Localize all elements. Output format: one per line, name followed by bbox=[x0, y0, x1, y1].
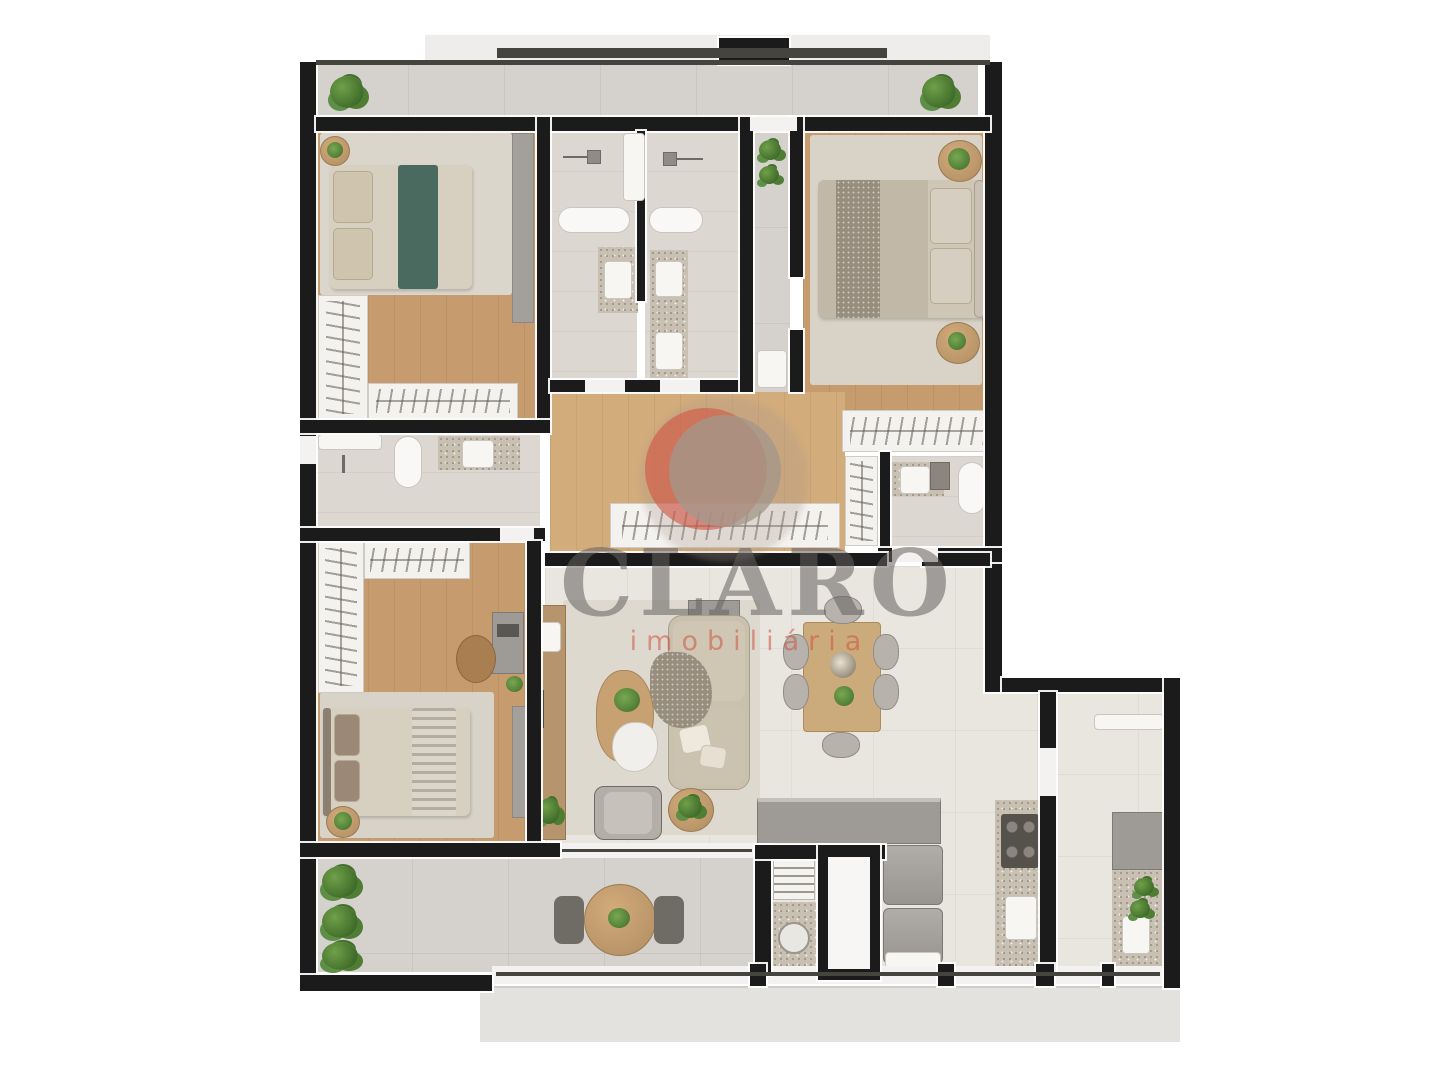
balcony-hedge-2 bbox=[322, 906, 358, 938]
bathroom1-bench bbox=[558, 207, 630, 233]
wall-baths-bottom bbox=[550, 380, 740, 392]
wall-bedroom1-bottom bbox=[300, 420, 550, 433]
bedroom1-nightstand-plant bbox=[327, 142, 343, 158]
laundry-tub bbox=[778, 922, 810, 954]
bedroom1-pillow-1 bbox=[333, 171, 373, 223]
master-pillow-1 bbox=[930, 188, 972, 244]
dining-chair-right-2 bbox=[873, 674, 899, 710]
bathroom3-door bbox=[500, 528, 534, 541]
wall-kitchen-right bbox=[1040, 692, 1056, 974]
wall-foyer-right-b bbox=[790, 330, 803, 392]
bedroom1-wardrobe-panel bbox=[512, 133, 534, 323]
service-shelf bbox=[1094, 714, 1164, 730]
master-nightstand-plant-bottom bbox=[948, 332, 966, 350]
sofa-pillow-2 bbox=[698, 744, 727, 770]
bedroom2-closet-top bbox=[364, 541, 470, 579]
bathroom3-window bbox=[300, 436, 316, 464]
bedroom1-pillow-2 bbox=[333, 228, 373, 280]
terrace-top-rail bbox=[316, 60, 990, 65]
watermark-disc bbox=[669, 415, 781, 527]
terrace-plant-right bbox=[922, 76, 956, 108]
foyer-console bbox=[757, 350, 787, 388]
bedroom2-closet-left bbox=[318, 541, 364, 693]
balcony-chair-right bbox=[654, 896, 684, 944]
kitchen-island-counter bbox=[757, 798, 941, 844]
floorplan-render: CLARO imobiliária bbox=[0, 0, 1440, 1080]
watermark-tagline: imobiliária bbox=[560, 622, 940, 662]
balcony-table-plant bbox=[608, 908, 630, 928]
kitchen-service-door bbox=[1040, 748, 1056, 796]
bathroom3-shower-handle bbox=[342, 455, 345, 473]
wing-top-wall bbox=[1002, 678, 1180, 692]
balcony-door-track bbox=[562, 849, 752, 852]
bathroom3-cabinet bbox=[318, 434, 382, 450]
void-mask bbox=[1002, 556, 1180, 680]
balcony-hedge-3 bbox=[322, 942, 358, 970]
bedroom2-wardrobe-panel bbox=[512, 706, 527, 818]
armchair-seat bbox=[604, 792, 652, 834]
master-pillow-2 bbox=[930, 248, 972, 304]
bathroom2-shower-head bbox=[663, 152, 677, 166]
bathroom2-bench bbox=[649, 207, 703, 233]
bathroom2-sink-1 bbox=[655, 261, 683, 297]
wall-foyer-right-a bbox=[790, 117, 803, 277]
master-bath-toilet bbox=[958, 462, 986, 514]
balcony-hedge-1 bbox=[322, 866, 358, 898]
bedroom2-headboard bbox=[323, 708, 331, 816]
bedroom2-plant bbox=[506, 676, 523, 692]
bedroom1-closet-bottom bbox=[368, 383, 518, 419]
wall-bedroom2-right bbox=[527, 541, 541, 843]
bottom-ledge bbox=[480, 986, 1180, 1042]
bedroom1-teal-runner bbox=[398, 165, 438, 289]
master-bath-shelf bbox=[930, 462, 950, 490]
service-sink bbox=[1122, 916, 1150, 954]
master-bath-sink bbox=[900, 466, 930, 494]
kitchen-sink bbox=[1005, 896, 1037, 940]
bottom-window-glass bbox=[496, 972, 1160, 976]
bathroom1-sink bbox=[604, 261, 632, 299]
bathroom1-shower-head bbox=[587, 150, 601, 164]
laundry-shaft-void bbox=[828, 857, 870, 969]
dining-chair-bottom bbox=[822, 732, 860, 758]
cooktop bbox=[1001, 814, 1039, 868]
bathroom2-sink-2 bbox=[655, 332, 683, 370]
top-window-bar bbox=[497, 48, 887, 58]
master-bed-runner bbox=[836, 180, 880, 318]
window-wall-row1 bbox=[316, 117, 990, 131]
master-closet-top bbox=[842, 410, 992, 452]
bedroom2-striped-blanket bbox=[412, 708, 456, 816]
bathroom2-shower-arm bbox=[677, 158, 703, 160]
bath-divider-cabinet bbox=[623, 133, 645, 201]
balcony-floor bbox=[316, 857, 755, 972]
bottom-left-wall bbox=[300, 975, 492, 991]
bedroom2-desk-chair bbox=[456, 635, 496, 683]
wall-bedroom2-bottom bbox=[300, 843, 560, 857]
bathroom3-sink bbox=[462, 440, 494, 468]
wing-right-wall bbox=[1164, 678, 1180, 988]
foyer-plant-2 bbox=[759, 166, 779, 184]
wall-bedroom1-right bbox=[537, 117, 550, 420]
wall-bath2-right bbox=[740, 117, 753, 392]
service-plant-2 bbox=[1130, 900, 1150, 918]
upper-terrace-floor bbox=[312, 64, 978, 118]
bedroom2-desk bbox=[492, 612, 524, 674]
service-cabinet bbox=[1112, 812, 1164, 870]
bathroom2-door bbox=[660, 380, 700, 392]
tv-console-plant bbox=[538, 798, 560, 824]
balcony-chair-left bbox=[554, 896, 584, 944]
bedroom2-nightstand-plant bbox=[334, 812, 352, 830]
side-table-plant bbox=[678, 796, 702, 818]
terrace-plant-left bbox=[330, 76, 364, 108]
bedroom2-monitor bbox=[497, 624, 519, 637]
washer bbox=[883, 845, 943, 905]
dining-plant-bowl bbox=[834, 686, 854, 706]
bedroom2-pillow-1 bbox=[334, 714, 360, 756]
dining-chair-left-2 bbox=[783, 674, 809, 710]
bathroom3-toilet bbox=[394, 436, 422, 488]
bedroom2-pillow-2 bbox=[334, 760, 360, 802]
laundry-rack bbox=[773, 860, 815, 900]
coffee-table-plant bbox=[614, 688, 640, 712]
outer-wall-right-upper bbox=[985, 62, 1002, 692]
foyer-plant-1 bbox=[759, 140, 781, 160]
entry-door-gap bbox=[750, 117, 797, 131]
laundry-wall-left bbox=[755, 845, 771, 975]
bedroom1-closet-left bbox=[318, 295, 368, 420]
bathroom1-shower-arm bbox=[563, 156, 587, 158]
master-nightstand-plant-top bbox=[948, 148, 970, 170]
master-headboard bbox=[974, 180, 985, 318]
service-plant-1 bbox=[1134, 878, 1154, 896]
bathroom1-door bbox=[585, 380, 625, 392]
